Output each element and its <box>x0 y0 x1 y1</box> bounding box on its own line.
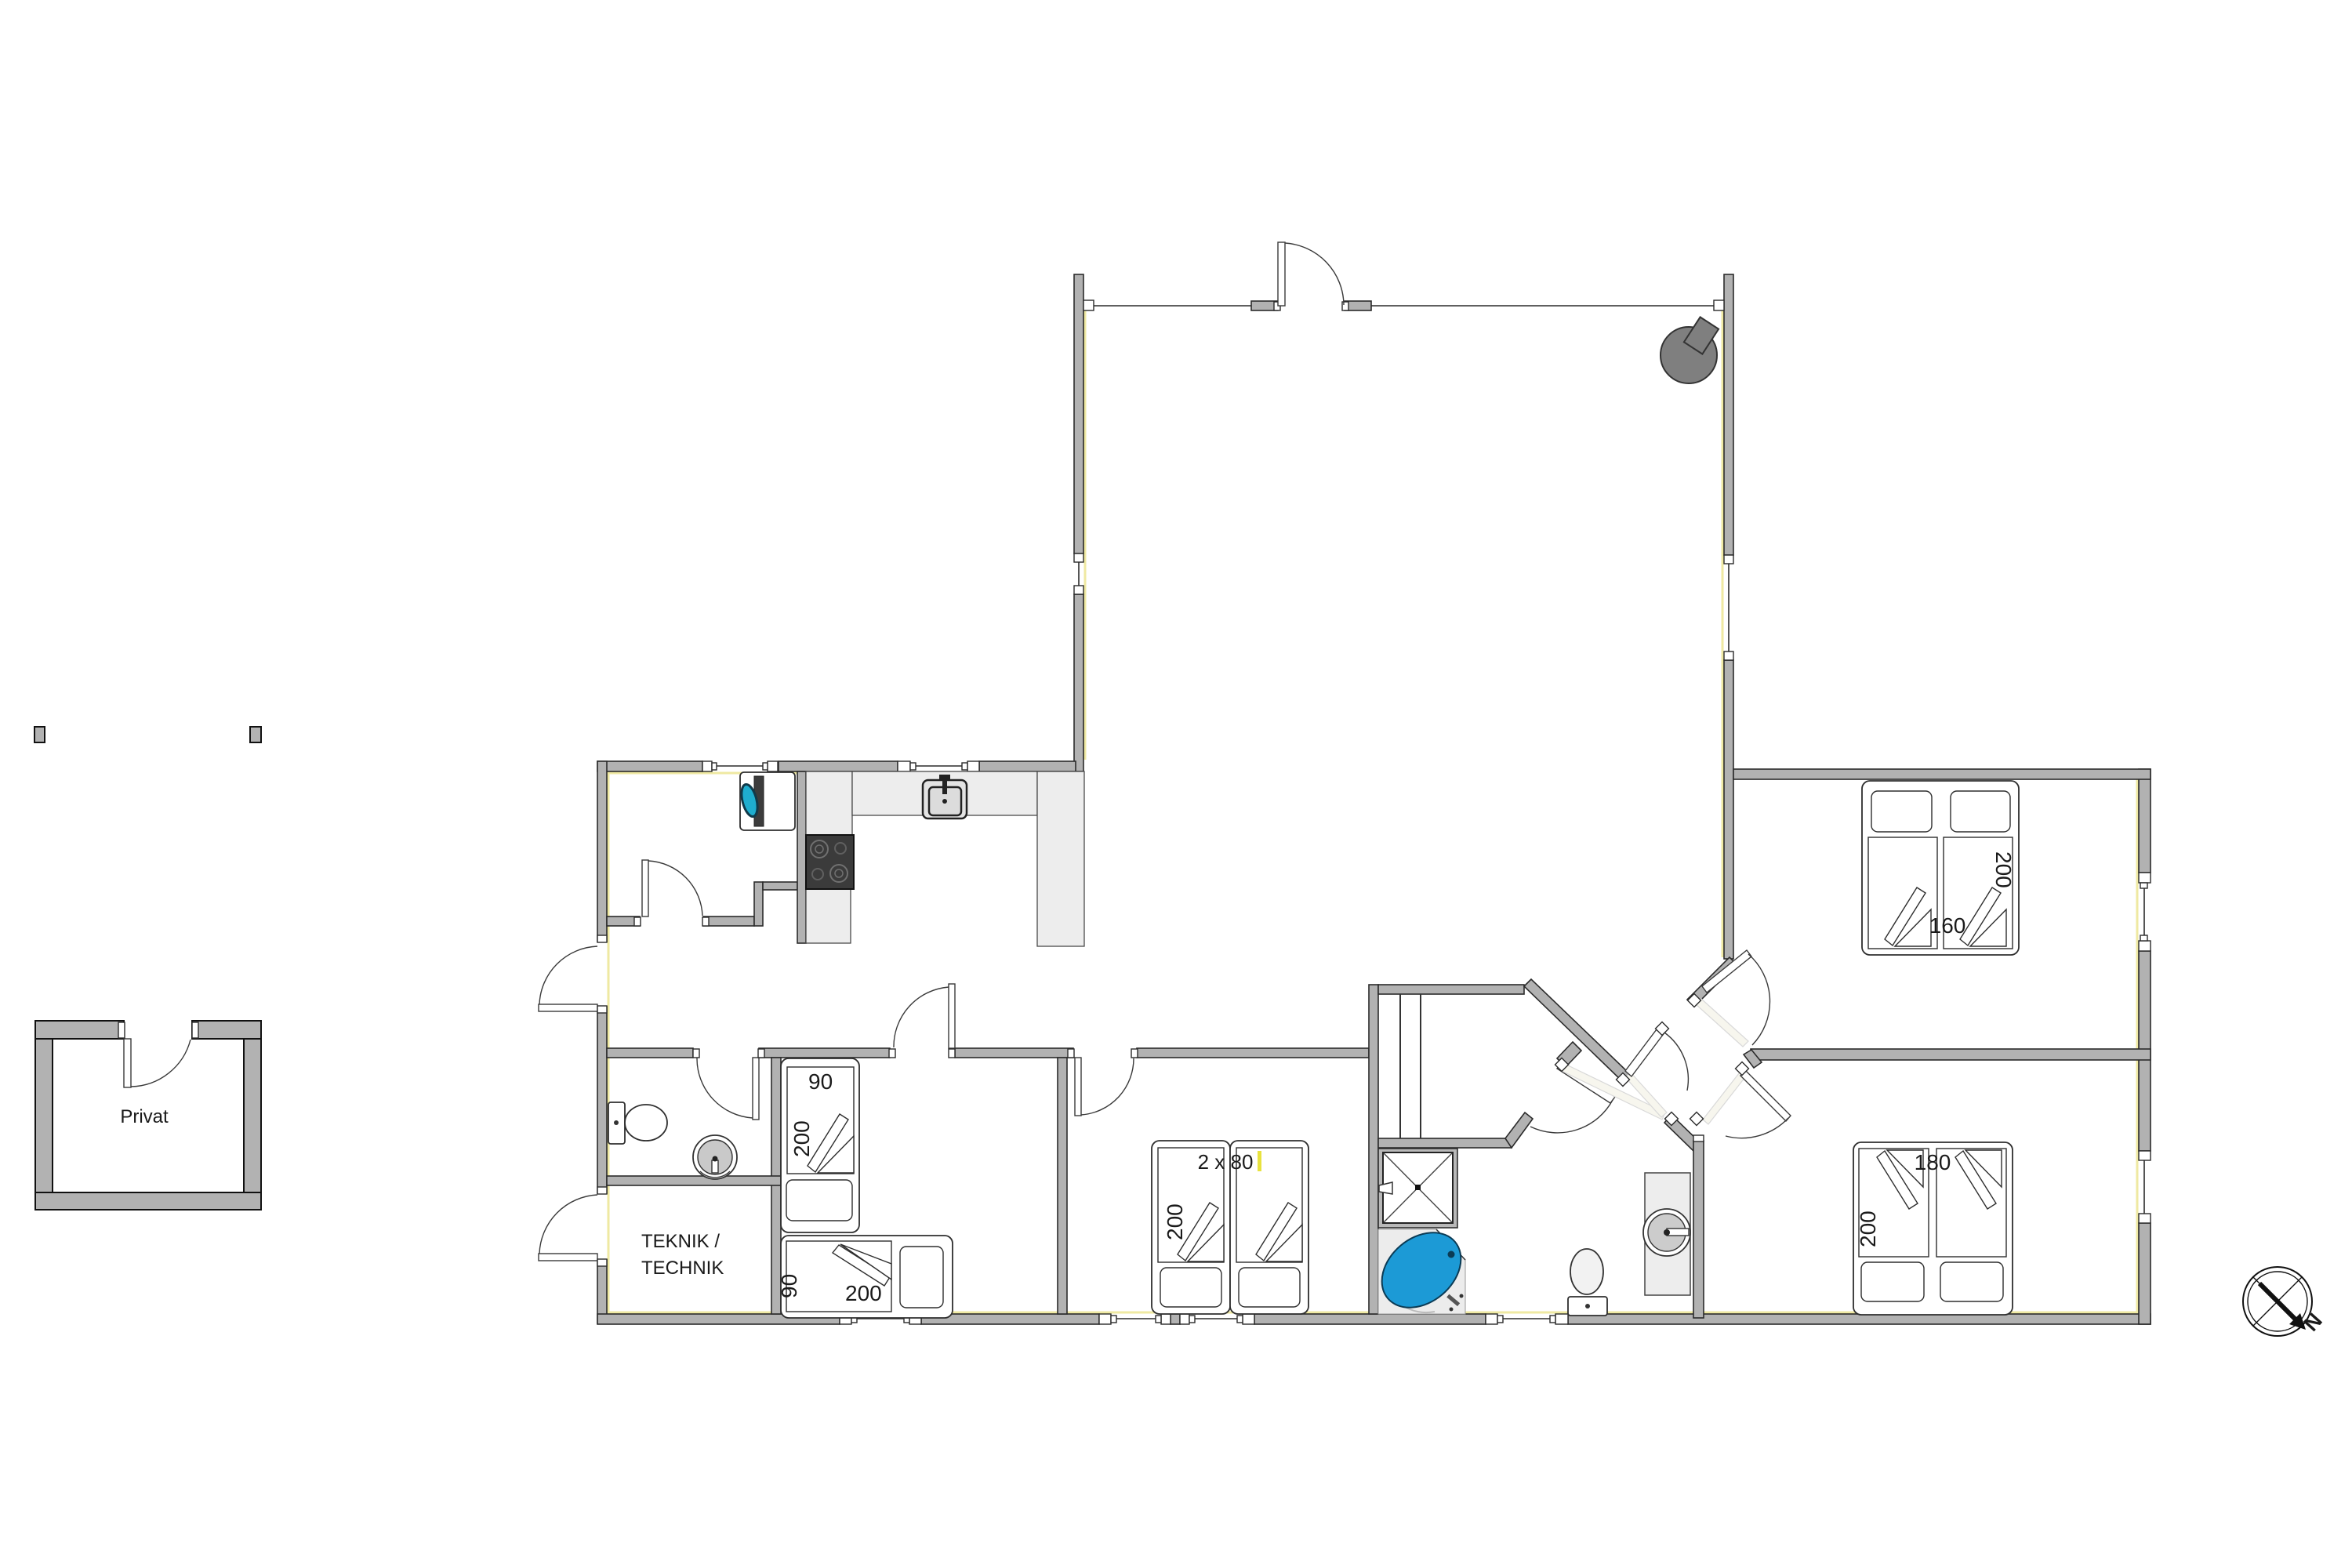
svg-text:90: 90 <box>808 1069 833 1094</box>
svg-text:90: 90 <box>777 1274 801 1298</box>
svg-text:Privat: Privat <box>120 1106 169 1127</box>
svg-text:180: 180 <box>1915 1150 1951 1174</box>
svg-text:TECHNIK: TECHNIK <box>641 1258 724 1279</box>
svg-text:2 x 80: 2 x 80 <box>1198 1150 1254 1174</box>
svg-text:TEKNIK /: TEKNIK / <box>641 1231 720 1252</box>
svg-text:200: 200 <box>1991 851 2016 888</box>
svg-text:200: 200 <box>789 1120 814 1157</box>
svg-text:200: 200 <box>1856 1210 1880 1247</box>
svg-text:200: 200 <box>845 1281 882 1305</box>
svg-text:160: 160 <box>1929 913 1966 938</box>
svg-text:200: 200 <box>1163 1203 1187 1240</box>
